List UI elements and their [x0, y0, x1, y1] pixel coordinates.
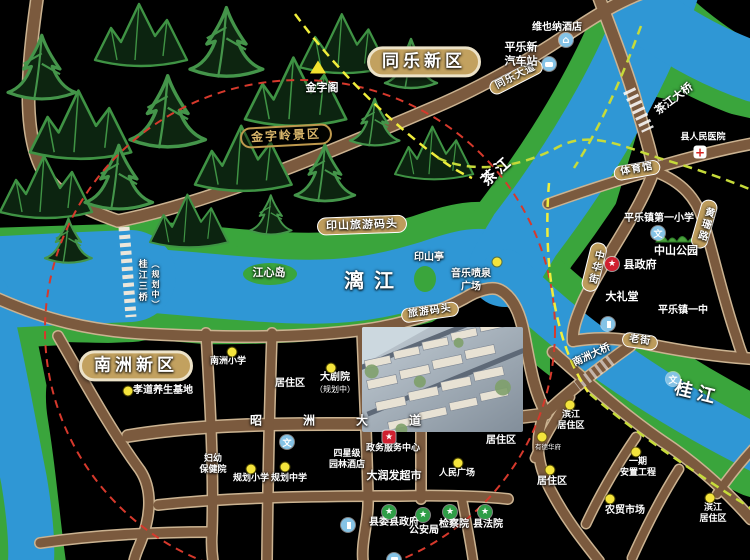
pingle-no1-middle: 平乐镇一中: [658, 305, 708, 318]
wharf-yinshan: 印山旅游码头: [317, 215, 408, 236]
county-committee-star-icon: ★: [382, 505, 396, 519]
nanzhou-primary: 南洲小学: [210, 356, 246, 367]
binjiang-north-dot: [566, 401, 575, 410]
zhaozhou-avenue: 昭洲大道: [250, 414, 462, 429]
theater-dot: [327, 364, 336, 373]
youde-huafu: 有德华府: [535, 443, 561, 451]
maternal-hospital: 妇幼保健院: [199, 454, 226, 477]
hall-icon: [601, 317, 615, 331]
tourist-map-canvas: 同乐新区南洲新区金字岭景区印山旅游码头旅游码头体育馆老街同乐大道昭洲大道中华街黄…: [0, 0, 750, 560]
xiaodao-dot: [124, 387, 133, 396]
bus-icon: [542, 57, 556, 71]
hospital-cross-icon: +: [694, 146, 707, 159]
music-fountain-square: 音乐喷泉广场: [451, 269, 491, 294]
laojie-street: 老街: [621, 331, 659, 350]
zhongshan-park: 中山公园: [654, 244, 698, 258]
gov-star-icon-county: ★: [605, 257, 619, 271]
nanzhou-bridge: 南洲大桥: [571, 342, 613, 370]
gov-service-center: 政务服务中心: [366, 443, 420, 454]
police-star-icon: ★: [416, 508, 430, 522]
peoples-square: 人民广场: [439, 468, 475, 479]
school-icon-residential-west: 文: [280, 435, 294, 449]
school-icon-no1-primary: 文: [651, 226, 665, 240]
wharf-tour: 旅游码头: [400, 301, 459, 323]
guijiang-bridge3: 桂江三桥: [135, 259, 146, 303]
court-star-icon: ★: [478, 505, 492, 519]
gymnasium: 体育馆: [613, 159, 662, 181]
phase1-resettlement: 一期安置工程: [620, 457, 656, 480]
planned-middle: 规划中学: [271, 473, 307, 484]
nanzhou-primary-dot: [228, 348, 237, 357]
farmers-market: 农贸市场: [605, 505, 645, 518]
jiangxin-island: 江心岛: [253, 266, 286, 280]
school-icon-no1-middle: 文: [666, 372, 680, 386]
binjiang-residential-south: 滨江居住区: [699, 503, 726, 526]
procuratorate-star-icon: ★: [443, 505, 457, 519]
public-security-bureau: 公安局: [409, 525, 439, 538]
supermarket-icon: [387, 553, 401, 560]
residential-east-dot: [546, 466, 555, 475]
guijiang-bridge3-note: （规划中）: [150, 260, 160, 310]
district-tongle-new-area: 同乐新区: [367, 46, 481, 77]
binjiang-residential-north: 滨江居住区: [557, 410, 584, 433]
chajiang-bridge: 茶江大桥: [652, 80, 695, 117]
binjiang-south-dot: [706, 494, 715, 503]
xiaodao-health-base: 孝道养生基地: [133, 385, 193, 398]
planned-primary: 规划小学: [233, 473, 269, 484]
grand-hall: 大礼堂: [606, 290, 639, 304]
county-court: 县法院: [473, 519, 503, 532]
planned-primary-dot: [247, 465, 256, 474]
jinzige-pavilion: 金字阁: [306, 81, 339, 95]
county-hospital: 县人民医院: [680, 132, 725, 143]
fountain-dot: [493, 258, 502, 267]
gov-service-star-icon: ★: [383, 431, 396, 444]
garden-hotel: 四星级园林酒店: [329, 449, 365, 472]
yinshan-pavilion: 印山亭: [414, 252, 444, 265]
planned-middle-dot: [281, 463, 290, 472]
rt-mart-supermarket: 大润发超市: [367, 469, 422, 483]
residential-east: 居住区: [537, 476, 567, 489]
residential-center: 居住区: [486, 435, 516, 448]
garden-hotel-icon: [341, 518, 355, 532]
phase1-dot: [632, 448, 641, 457]
youde-dot: [538, 433, 547, 442]
scenic-jinziling: 金字岭景区: [240, 123, 333, 149]
river-guijiang: 桂江: [672, 378, 722, 411]
hotel-icon: ⌂: [559, 33, 573, 47]
peoples-square-dot: [454, 459, 463, 468]
vienna-hotel: 维也纳酒店: [532, 22, 582, 35]
procuratorate: 检察院: [439, 519, 469, 532]
residential-west: 居住区: [275, 378, 305, 391]
zhonghua-street: 中华街: [580, 241, 608, 294]
grand-theater: 大剧院（规划中）: [315, 372, 355, 395]
river-chajiang: 茶江: [477, 152, 516, 190]
farmers-market-dot: [606, 495, 615, 504]
map-labels-layer: 同乐新区南洲新区金字岭景区印山旅游码头旅游码头体育馆老街同乐大道昭洲大道中华街黄…: [0, 0, 750, 560]
jinzige-triangle-icon: [310, 61, 326, 74]
district-nanzhou-new-area: 南洲新区: [79, 350, 193, 381]
county-government: 县政府: [624, 258, 657, 272]
pingle-no1-primary: 平乐镇第一小学: [624, 213, 694, 226]
new-bus-station: 平乐新汽车站: [505, 40, 538, 68]
river-lijiang: 漓江: [344, 269, 404, 294]
